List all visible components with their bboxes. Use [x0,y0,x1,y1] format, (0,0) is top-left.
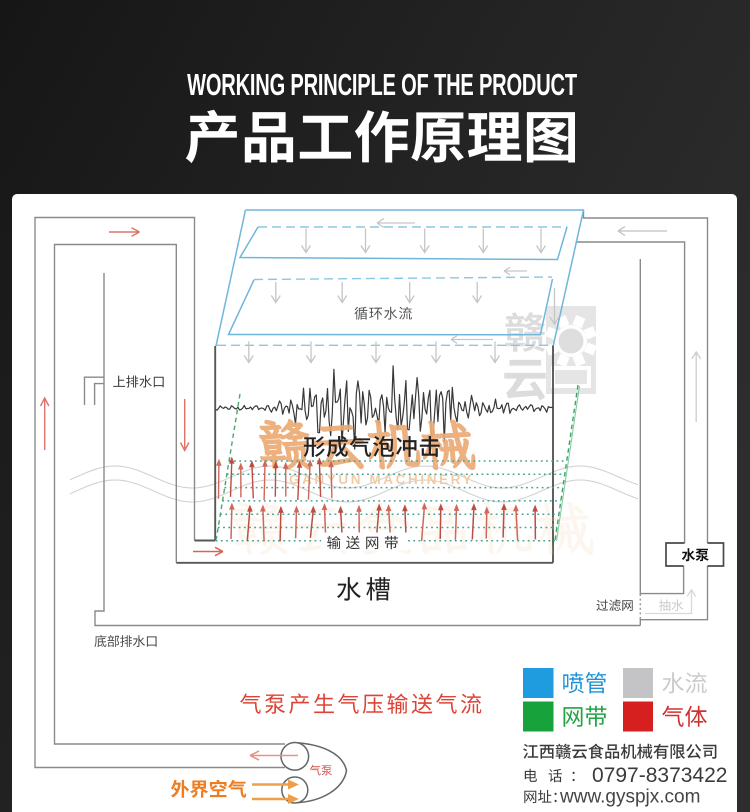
svg-text:WORKING PRINCIPLE OF THE PRODU: WORKING PRINCIPLE OF THE PRODUCT [187,67,577,103]
svg-text:0797-8373422: 0797-8373422 [592,764,727,787]
svg-text:www.gyspjx.com: www.gyspjx.com [559,787,700,808]
